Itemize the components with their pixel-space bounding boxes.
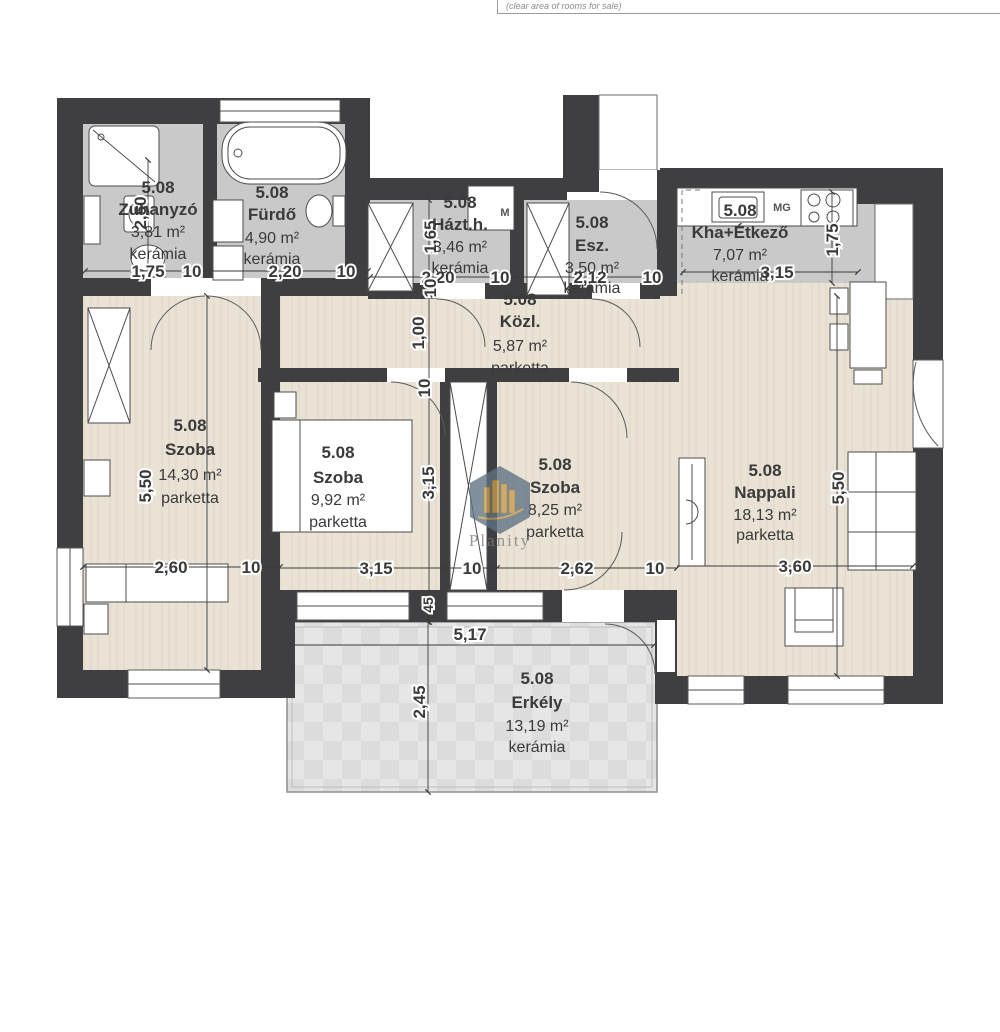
dim-wall: 10 <box>646 559 665 578</box>
toilet-icon <box>306 195 345 227</box>
armchair-icon <box>785 588 843 646</box>
wall <box>440 368 450 590</box>
svg-text:Erkély: Erkély <box>511 693 563 712</box>
svg-text:5,87 m²: 5,87 m² <box>493 338 548 355</box>
entrance-door-opening <box>599 170 657 192</box>
svg-text:Szoba: Szoba <box>165 440 216 459</box>
tv-cabinet-icon <box>679 458 705 566</box>
svg-text:Fürdő: Fürdő <box>248 205 296 224</box>
dim-wall: 10 <box>463 559 482 578</box>
dim-nappali-width: 3,60 <box>778 557 811 576</box>
svg-text:kerámia: kerámia <box>244 251 301 268</box>
balcony-door-opening <box>657 620 675 672</box>
chair-icon <box>830 288 848 314</box>
dim-wall: 10 <box>491 268 510 287</box>
dim-szoba3-width: 2,62 <box>560 559 593 578</box>
chair-icon <box>830 324 848 350</box>
dim-wall: 10 <box>183 262 202 281</box>
door-opening <box>569 368 627 382</box>
svg-text:5.08: 5.08 <box>520 669 553 688</box>
svg-text:7,07 m²: 7,07 m² <box>713 247 768 264</box>
svg-text:parketta: parketta <box>161 490 219 507</box>
watermark: Planity <box>469 466 531 550</box>
svg-text:parketta: parketta <box>736 527 794 544</box>
shower-tray-icon <box>89 126 159 186</box>
bath-cabinet-icon <box>213 200 243 242</box>
balcony-door-opening <box>562 590 624 622</box>
washer-label: M <box>500 207 509 219</box>
dim-szoba2-height: 3,15 <box>419 466 438 499</box>
svg-text:Szoba: Szoba <box>313 468 364 487</box>
dim-erkely-height: 2,45 <box>410 685 429 718</box>
svg-text:kerámia: kerámia <box>130 246 187 263</box>
svg-text:5.08: 5.08 <box>575 213 608 232</box>
svg-text:5.08: 5.08 <box>723 201 756 220</box>
dim-wall: 10 <box>643 268 662 287</box>
desk-icon <box>84 460 110 496</box>
svg-text:9,92 m²: 9,92 m² <box>311 492 366 509</box>
dim-wall: 10 <box>242 558 261 577</box>
dim-szoba1-height: 5,50 <box>136 469 155 502</box>
svg-text:5.08: 5.08 <box>321 443 354 462</box>
dim-szoba1-width: 2,60 <box>154 558 187 577</box>
dishwasher-label: MG <box>773 202 791 214</box>
dim-zuhanyzo-width: 1,75 <box>131 262 164 281</box>
svg-text:parketta: parketta <box>491 360 549 377</box>
bath-cabinet-icon <box>213 246 243 280</box>
svg-text:3,50 m²: 3,50 m² <box>565 260 620 277</box>
entrance-recess <box>599 95 657 170</box>
dim-wall-45: 45 <box>420 597 436 613</box>
svg-text:5.08: 5.08 <box>503 290 536 309</box>
dim-konyha-height: 1,75 <box>823 223 842 256</box>
svg-text:5.08: 5.08 <box>443 193 476 212</box>
dim-szoba2-width: 3,15 <box>359 559 392 578</box>
svg-text:3,46 m²: 3,46 m² <box>433 239 488 256</box>
svg-text:Kha+Étkező: Kha+Étkező <box>692 223 789 242</box>
svg-text:parketta: parketta <box>526 524 584 541</box>
dim-kozl-height: 1,00 <box>409 316 428 349</box>
svg-text:13,19 m²: 13,19 m² <box>505 718 569 735</box>
svg-text:3,81 m²: 3,81 m² <box>131 224 186 241</box>
wardrobe-icon <box>368 203 413 291</box>
svg-text:Nappali: Nappali <box>734 483 795 502</box>
floor-erkely <box>287 622 657 792</box>
dim-wall: 10 <box>415 379 434 398</box>
dim-wall: 10 <box>337 262 356 281</box>
floorplan-page: (clear area of rooms for sale) <box>0 0 1000 1032</box>
svg-text:Szoba: Szoba <box>530 478 581 497</box>
svg-text:14,30 m²: 14,30 m² <box>158 467 222 484</box>
wardrobe-icon <box>88 308 130 423</box>
svg-text:5.08: 5.08 <box>538 455 571 474</box>
svg-text:18,13 m²: 18,13 m² <box>733 507 797 524</box>
nightstand-icon <box>84 604 108 634</box>
svg-text:5.08: 5.08 <box>255 183 288 202</box>
sink-icon <box>84 196 100 244</box>
svg-text:parketta: parketta <box>309 514 367 531</box>
svg-text:kerámia: kerámia <box>509 739 566 756</box>
stove-icon <box>801 190 853 226</box>
svg-text:Közl.: Közl. <box>500 312 541 331</box>
bathtub-icon <box>222 122 346 184</box>
svg-text:4,90 m²: 4,90 m² <box>245 230 300 247</box>
chair-icon <box>854 370 882 384</box>
dim-nappali-height: 5,50 <box>829 471 848 504</box>
wall <box>261 590 295 698</box>
french-door <box>913 360 943 448</box>
svg-text:Esz.: Esz. <box>575 236 609 255</box>
nightstand-icon <box>274 392 296 418</box>
sofa-icon <box>848 452 916 570</box>
wall <box>563 95 599 192</box>
svg-text:5.08: 5.08 <box>141 178 174 197</box>
dim-wall: 10 <box>421 279 440 298</box>
svg-text:kerámia: kerámia <box>432 260 489 277</box>
watermark-text: Planity <box>469 531 531 550</box>
floorplan-svg: M MG <box>0 0 1000 1032</box>
svg-text:kerámia: kerámia <box>712 268 769 285</box>
svg-text:Házt.h.: Házt.h. <box>432 215 488 234</box>
svg-text:5.08: 5.08 <box>173 416 206 435</box>
svg-text:5.08: 5.08 <box>748 461 781 480</box>
svg-text:Zuhanyzó: Zuhanyzó <box>118 200 197 219</box>
door-opening <box>151 278 261 296</box>
svg-text:8,25 m²: 8,25 m² <box>528 502 583 519</box>
svg-text:kerámia: kerámia <box>564 280 621 297</box>
dim-erkely-width: 5,17 <box>453 625 486 644</box>
